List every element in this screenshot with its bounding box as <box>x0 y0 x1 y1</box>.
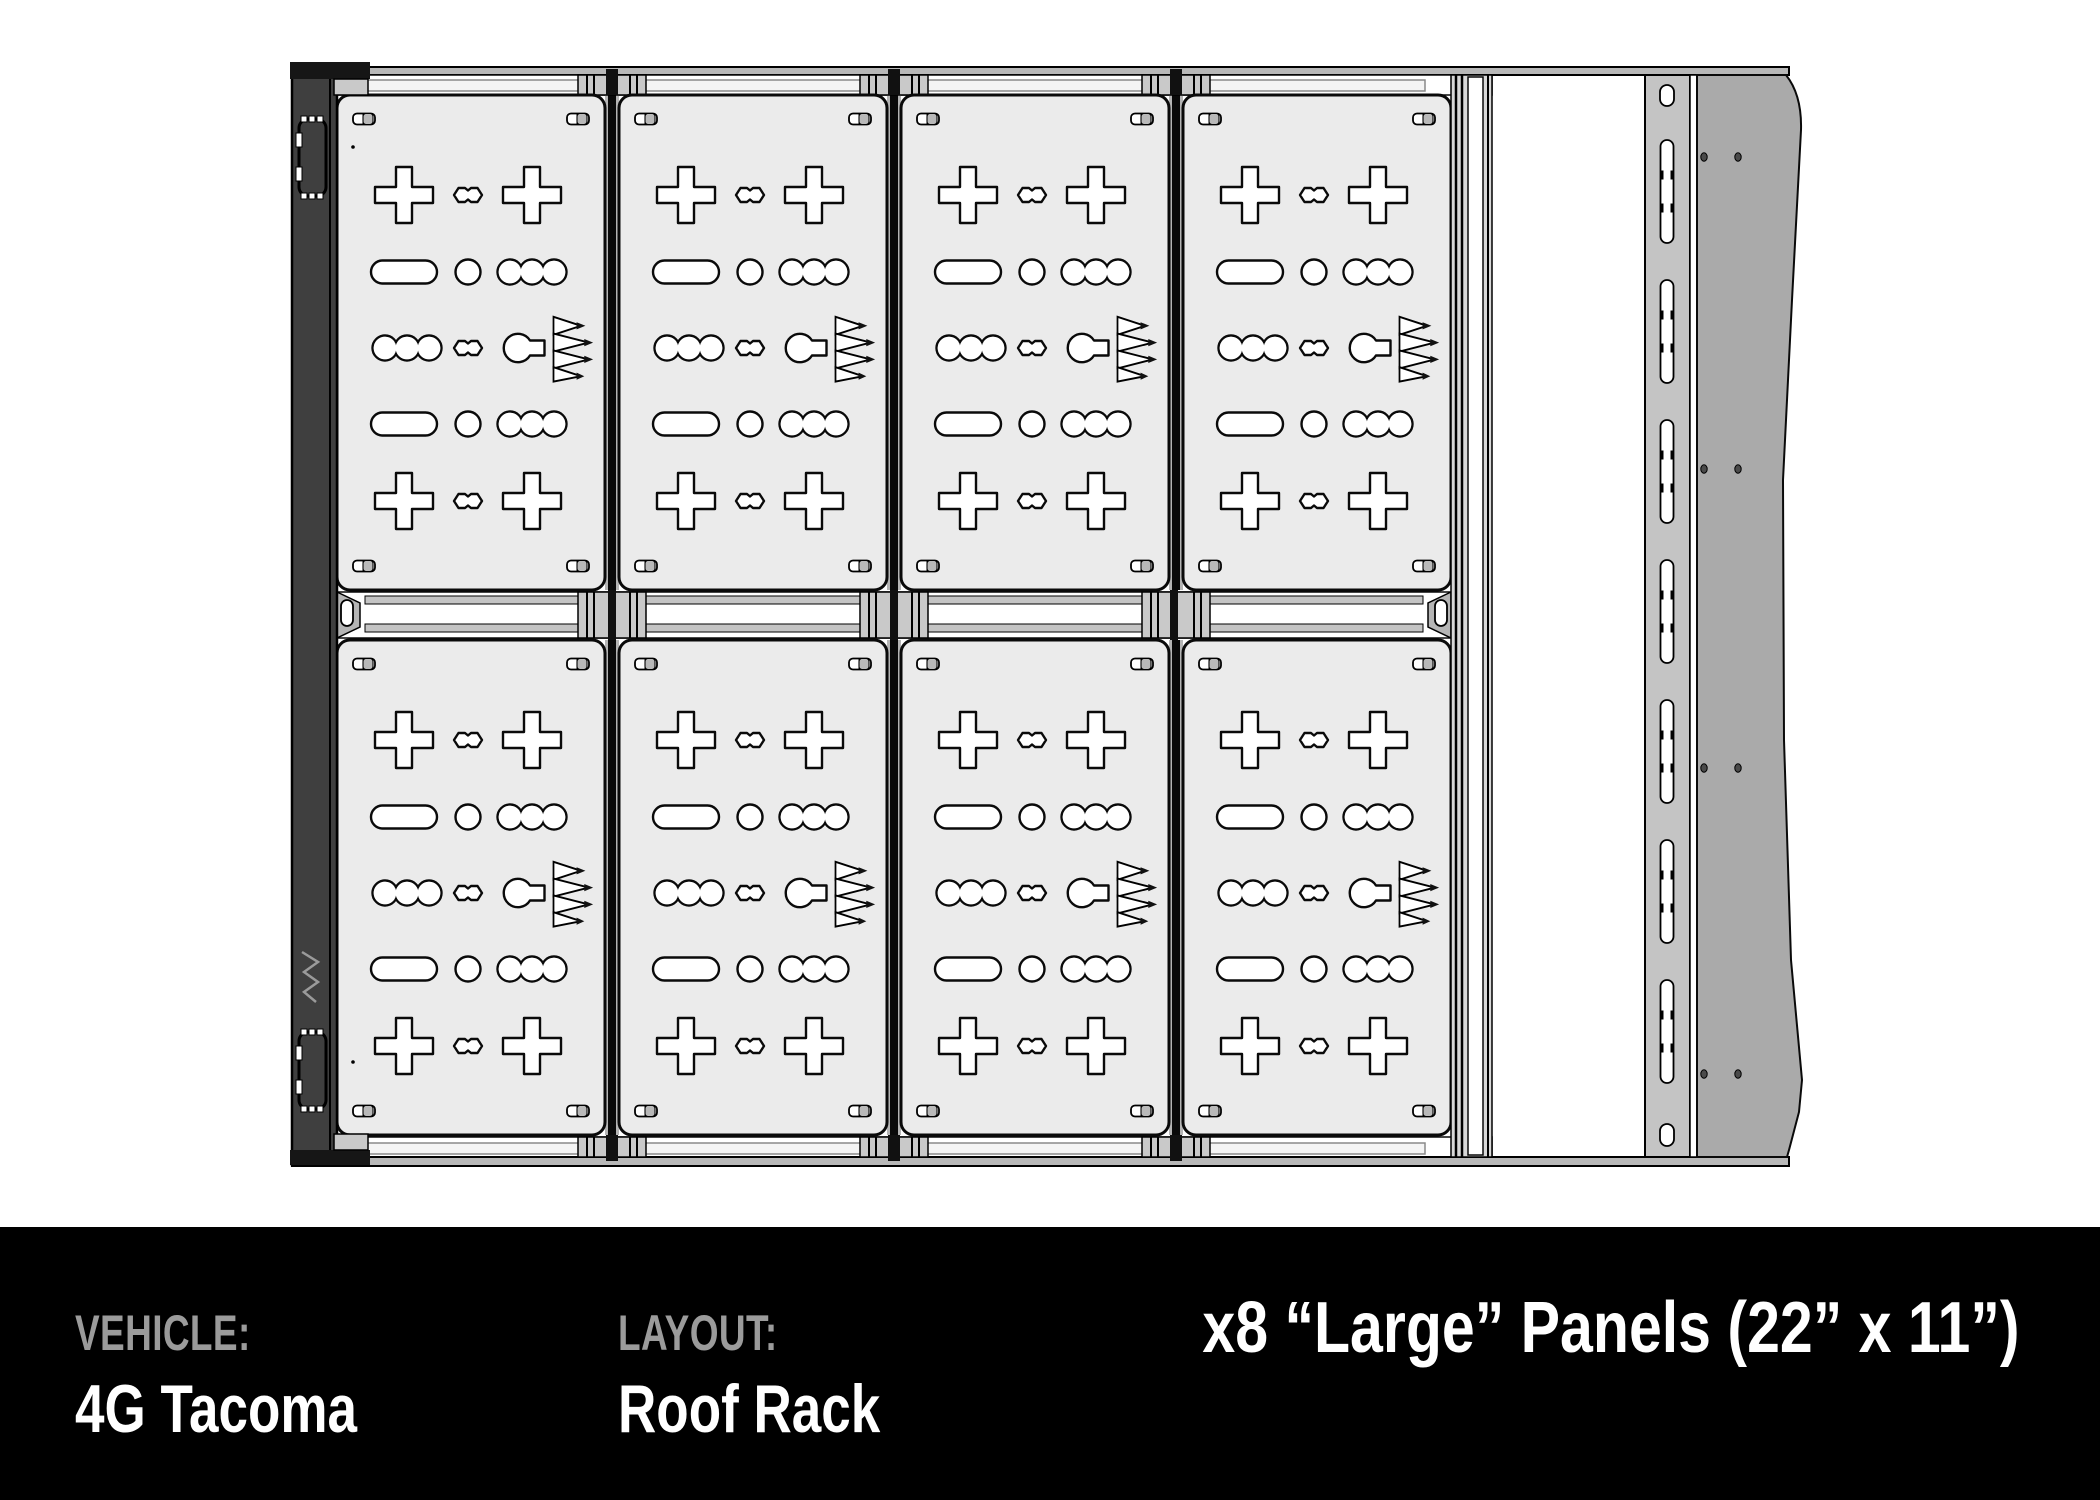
wind-fairing <box>1697 75 1802 1157</box>
panel-r2-c2 <box>619 640 887 1135</box>
vehicle-field: VEHICLE: 4G Tacoma <box>75 1308 437 1443</box>
panel-r1-c4 <box>1183 95 1451 590</box>
panel-r1-c1 <box>337 95 605 590</box>
panel-r2-c3 <box>901 640 1169 1135</box>
vehicle-label: VEHICLE: <box>75 1308 343 1358</box>
panel-r1-c2 <box>619 95 887 590</box>
panel-r2-c4 <box>1183 640 1451 1135</box>
front-cross-rail <box>292 67 1789 95</box>
accessory-channel <box>1645 75 1697 1157</box>
panel-r1-c3 <box>901 95 1169 590</box>
reference-dot-bottom <box>351 1060 355 1064</box>
roof-rack-diagram <box>0 0 2100 1227</box>
footer-bar: VEHICLE: 4G Tacoma LAYOUT: Roof Rack x8 … <box>0 1227 2100 1500</box>
page: VEHICLE: 4G Tacoma LAYOUT: Roof Rack x8 … <box>0 0 2100 1500</box>
layout-field: LAYOUT: Roof Rack <box>618 1308 954 1443</box>
panel-count-summary: x8 “Large” Panels (22” x 11”) <box>1203 1292 2020 1364</box>
rear-cross-rail <box>292 1137 1789 1166</box>
layout-value: Roof Rack <box>618 1375 880 1443</box>
reference-dot-top <box>351 145 355 149</box>
right-side-extrusion <box>1451 75 1492 1157</box>
vehicle-value: 4G Tacoma <box>75 1375 357 1443</box>
layout-label: LAYOUT: <box>618 1308 867 1358</box>
panel-r2-c1 <box>337 640 605 1135</box>
